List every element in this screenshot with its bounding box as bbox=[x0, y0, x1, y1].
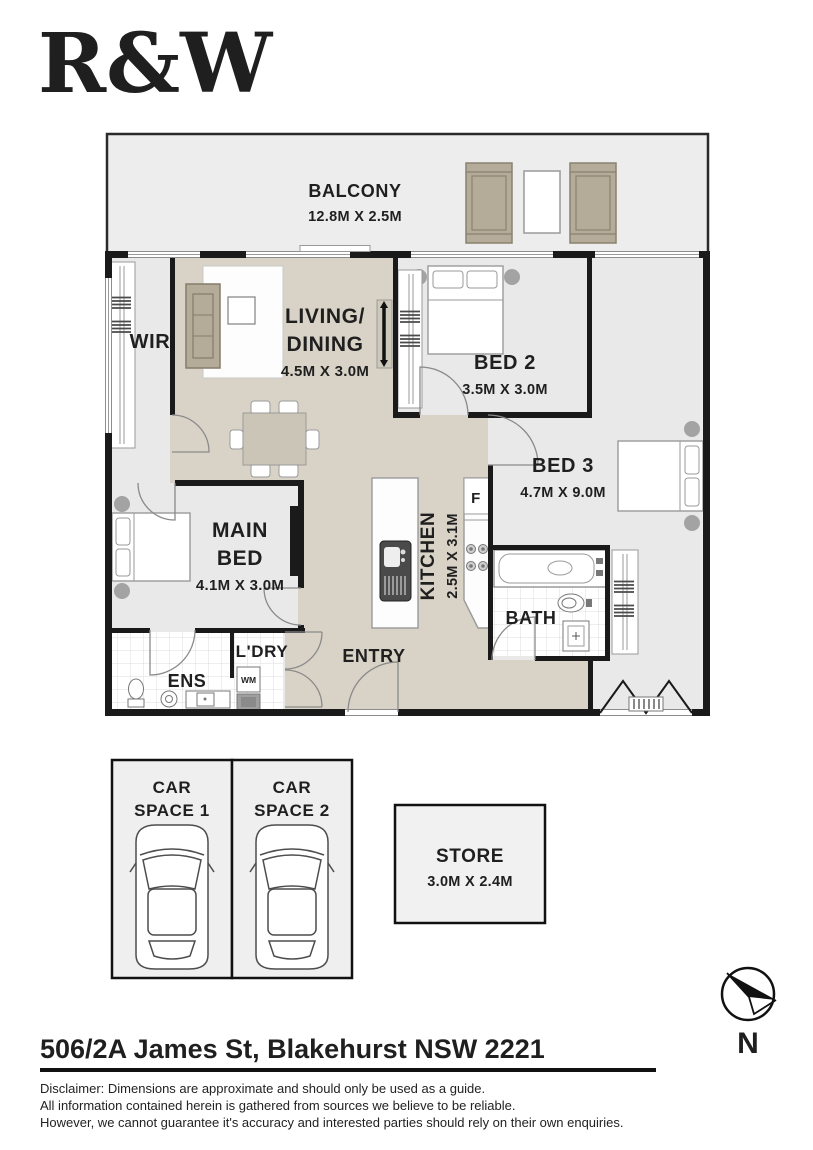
room-dims-living: 4.5M X 3.0M bbox=[281, 363, 369, 380]
store-zone: STORE 3.0M X 2.4M bbox=[395, 805, 545, 923]
room-label-bed2: BED 2 bbox=[474, 352, 536, 374]
coffee-table-icon bbox=[228, 297, 255, 324]
room-label-main-bed-1: MAIN bbox=[212, 519, 268, 542]
room-label-bed3: BED 3 bbox=[532, 455, 594, 477]
room-dims-bed2: 3.5M X 3.0M bbox=[462, 382, 548, 398]
room-label-main-bed-2: BED bbox=[217, 547, 263, 570]
sun-lounger-icon bbox=[570, 163, 616, 243]
room-label-ens: ENS bbox=[168, 671, 207, 691]
shower-icon-bath bbox=[563, 621, 589, 651]
disclaimer-line-2: All information contained herein is gath… bbox=[40, 1098, 515, 1113]
room-dims-bed3: 4.7M X 9.0M bbox=[520, 485, 606, 501]
room-dims-main-bed: 4.1M X 3.0M bbox=[196, 577, 284, 594]
basin-icon-ens bbox=[161, 691, 230, 708]
compass: N bbox=[722, 968, 776, 1060]
room-label-entry: ENTRY bbox=[342, 646, 405, 666]
balcony-floor bbox=[107, 134, 708, 256]
car-space-2-label-1: CAR bbox=[273, 778, 312, 797]
car-space-2-label-2: SPACE 2 bbox=[254, 801, 330, 820]
bed-icon-bed2 bbox=[411, 266, 520, 354]
room-label-wir: WIR bbox=[130, 331, 171, 353]
footer: 506/2A James St, Blakehurst NSW 2221 Dis… bbox=[40, 1034, 656, 1130]
room-label-living-1: LIVING/ bbox=[285, 305, 365, 328]
property-address: 506/2A James St, Blakehurst NSW 2221 bbox=[40, 1034, 545, 1064]
balcony-label: BALCONY bbox=[308, 181, 401, 201]
store-label: STORE bbox=[436, 846, 504, 867]
tv-unit-icon bbox=[377, 300, 392, 368]
car-icon bbox=[250, 825, 334, 969]
wardrobe-icon-wir bbox=[109, 262, 135, 448]
wardrobe-icon-bed3 bbox=[612, 550, 638, 654]
room-label-bath: BATH bbox=[505, 608, 556, 628]
balcony-zone: BALCONY 12.8M X 2.5M bbox=[107, 134, 708, 256]
car-icon bbox=[130, 825, 214, 969]
room-label-living-2: DINING bbox=[286, 333, 363, 356]
car-space-1-label-2: SPACE 1 bbox=[134, 801, 210, 820]
address-underline bbox=[40, 1068, 656, 1072]
rw-logo: R&W bbox=[38, 16, 274, 112]
bathtub-icon bbox=[494, 550, 606, 587]
floorplan-page: R&W BALCONY 12.8M X 2.5M bbox=[0, 0, 813, 1150]
wardrobe-icon-bed2 bbox=[398, 270, 422, 408]
toilet-icon-ens bbox=[128, 679, 144, 707]
disclaimer-line-3: However, we cannot guarantee it's accura… bbox=[40, 1115, 623, 1130]
store-dims: 3.0M X 2.4M bbox=[427, 874, 513, 890]
washing-machine-icon bbox=[237, 667, 260, 710]
room-dims-kitchen: 2.5M X 3.1M bbox=[445, 513, 461, 599]
room-label-ldry: L'DRY bbox=[236, 642, 289, 661]
sun-lounger-icon bbox=[466, 163, 512, 243]
washing-machine-label: WM bbox=[241, 675, 256, 685]
car-space-1-label-1: CAR bbox=[153, 778, 192, 797]
disclaimer-line-1: Disclaimer: Dimensions are approximate a… bbox=[40, 1081, 485, 1096]
parking-zone: CAR SPACE 1 CAR SPACE 2 bbox=[112, 760, 352, 978]
floorplan-canvas: R&W BALCONY 12.8M X 2.5M bbox=[0, 0, 813, 1150]
compass-north-label: N bbox=[737, 1027, 759, 1060]
kitchen-island-icon bbox=[372, 478, 418, 628]
balcony-dims: 12.8M X 2.5M bbox=[308, 209, 402, 225]
room-label-kitchen: KITCHEN bbox=[418, 512, 439, 601]
fridge-label: F bbox=[471, 490, 481, 507]
balcony-table-icon bbox=[524, 171, 560, 233]
sofa-icon bbox=[186, 284, 220, 368]
